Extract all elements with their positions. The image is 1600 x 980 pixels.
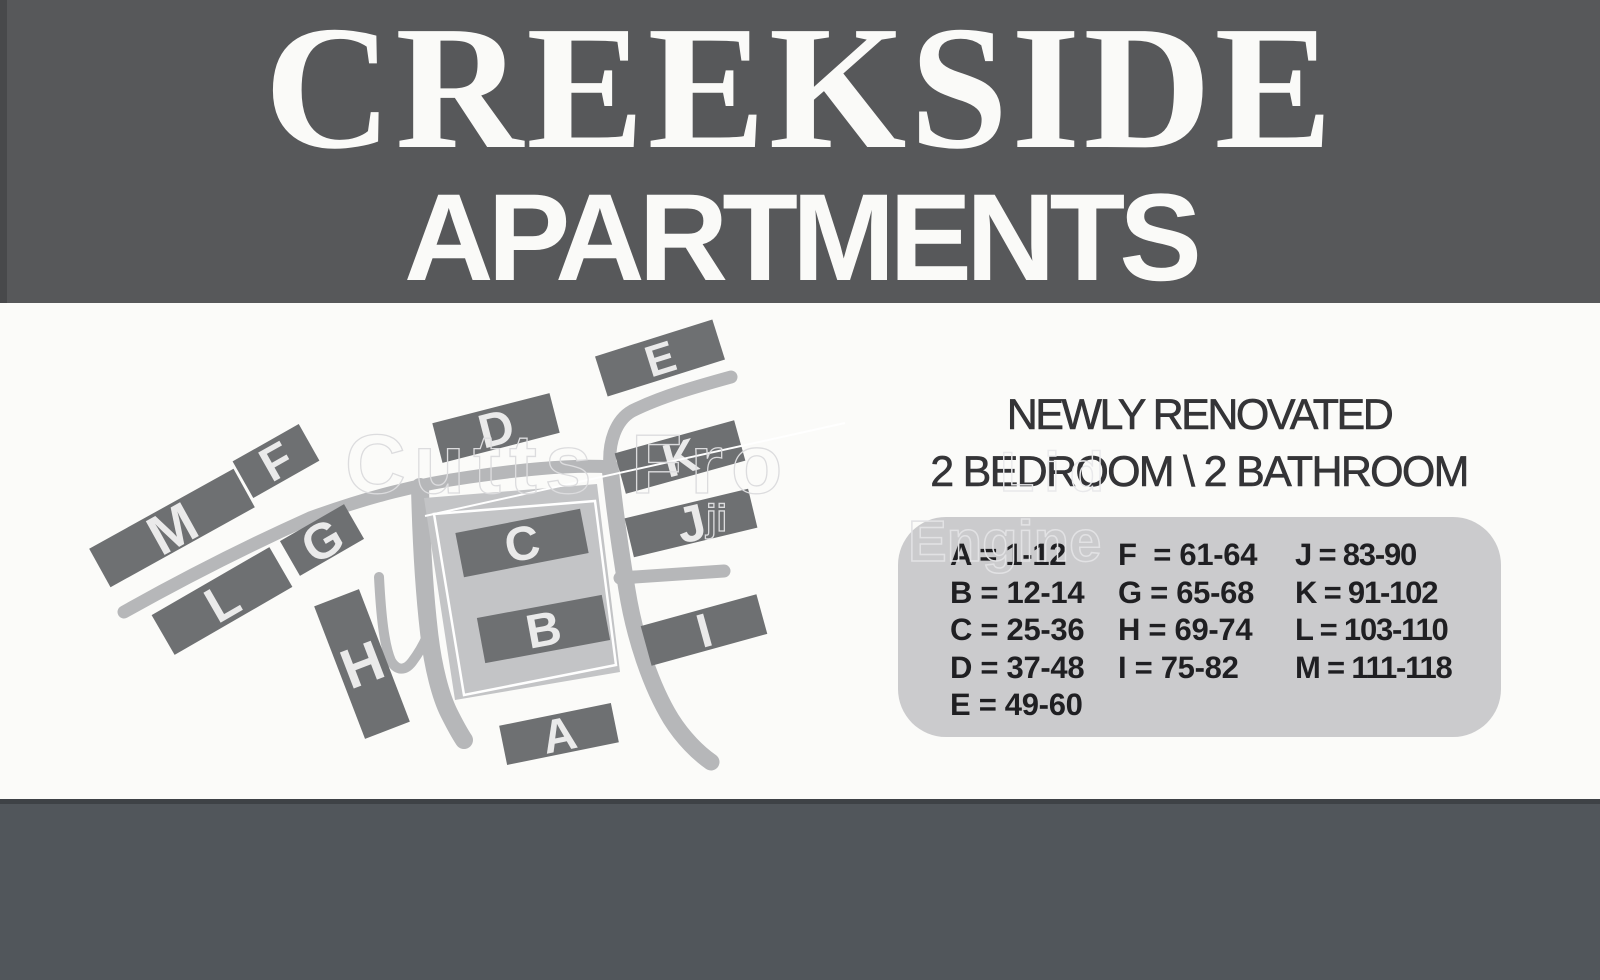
svg-text:Cutts Fro: Cutts Fro [345,417,790,511]
svg-text:ji: ji [705,498,727,540]
svg-text:Engine: Engine [908,509,1101,574]
svg-text:Lid: Lid [1000,440,1114,503]
